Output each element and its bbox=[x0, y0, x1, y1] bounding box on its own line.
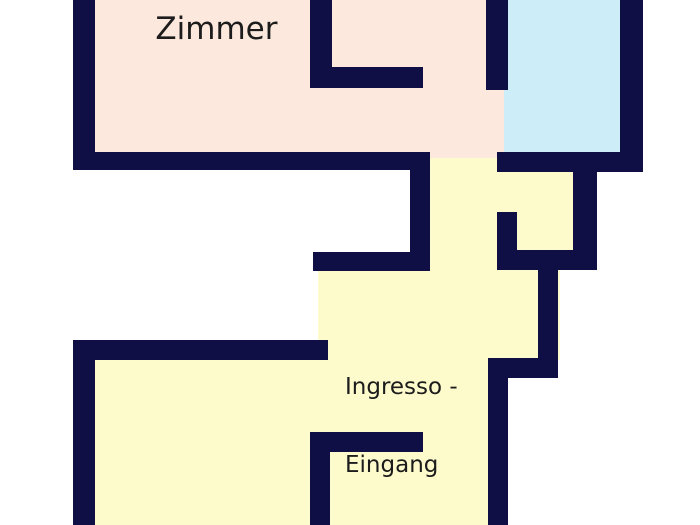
room-label-ingresso-line2: Eingang bbox=[345, 452, 458, 478]
wall-zimmer-partition-h bbox=[310, 67, 423, 88]
wall-alcove-stub bbox=[497, 212, 517, 250]
room-label-ingresso-line1: Ingresso - bbox=[345, 374, 458, 400]
wall-soggiorno-top bbox=[73, 340, 328, 360]
wall-bath-left bbox=[486, 0, 508, 90]
wall-corridor-right-lower bbox=[488, 378, 508, 525]
room-label-zimmer: Zimmer bbox=[116, 0, 277, 76]
wall-notch-bottom bbox=[313, 252, 430, 271]
wall-soggiorno-left bbox=[73, 340, 95, 525]
wall-zimmer-bottom bbox=[73, 152, 430, 170]
wall-zimmer-left bbox=[73, 0, 95, 170]
wall-corridor-jog bbox=[488, 358, 538, 378]
room-label-ingresso: Ingresso - Eingang bbox=[345, 322, 458, 525]
wall-bath-right bbox=[620, 0, 643, 172]
wall-corridor-right-upper bbox=[538, 270, 558, 378]
floorplan: Zimmer Ingresso - Eingang Soggiorno - bbox=[0, 0, 700, 525]
room-area-bath bbox=[504, 0, 620, 152]
room-label-zimmer-text: Zimmer bbox=[155, 11, 277, 47]
wall-alcove-bottom bbox=[497, 250, 597, 270]
wall-bath-bottom bbox=[497, 152, 643, 172]
room-label-soggiorno: Soggiorno - bbox=[104, 496, 321, 525]
